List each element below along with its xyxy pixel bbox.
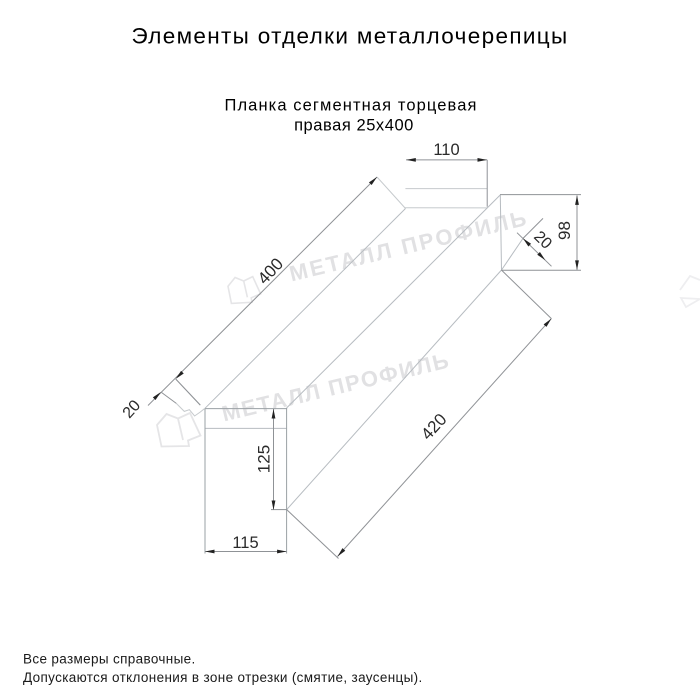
- svg-text:115: 115: [232, 534, 258, 552]
- svg-text:110: 110: [433, 141, 459, 159]
- svg-text:125: 125: [255, 445, 274, 473]
- svg-text:Элементы отделки металлочерепи: Элементы отделки металлочерепицы: [131, 24, 568, 49]
- svg-text:правая 25х400: правая 25х400: [294, 117, 414, 135]
- svg-text:Планка сегментная торцевая: Планка сегментная торцевая: [224, 97, 477, 115]
- svg-text:Все размеры справочные.: Все размеры справочные.: [23, 652, 196, 667]
- svg-text:98: 98: [555, 221, 574, 240]
- svg-text:Допускаются отклонения в зоне: Допускаются отклонения в зоне отрезки (с…: [23, 670, 423, 685]
